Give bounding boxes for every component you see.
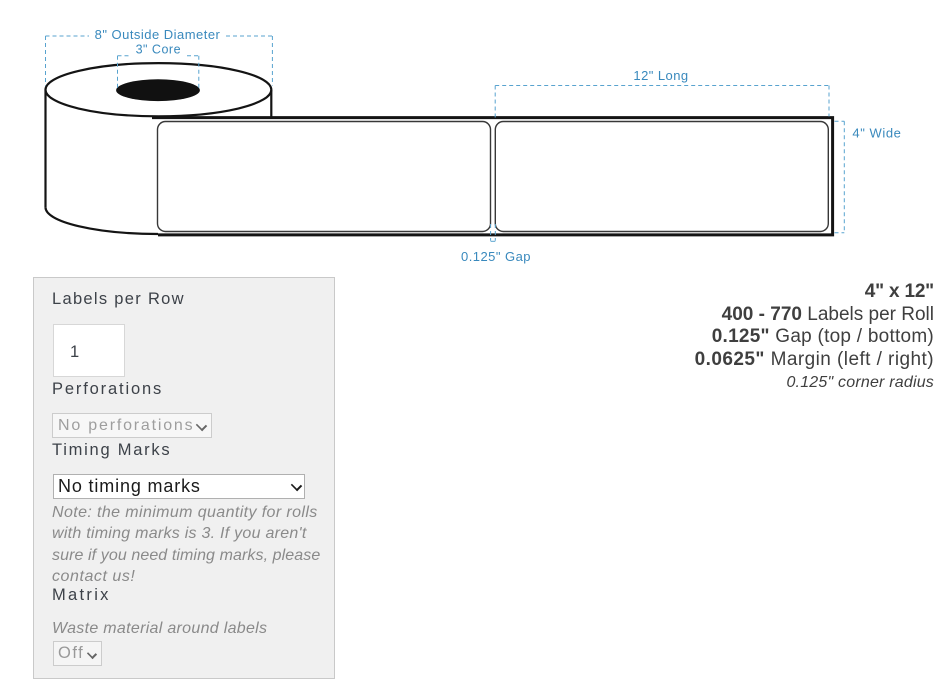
svg-text:0.125" Gap: 0.125" Gap: [461, 249, 531, 264]
svg-text:3" Core: 3" Core: [136, 42, 181, 56]
svg-text:4" Wide: 4" Wide: [852, 125, 901, 140]
svg-text:8" Outside Diameter: 8" Outside Diameter: [95, 27, 221, 42]
svg-text:12" Long: 12" Long: [633, 68, 688, 83]
